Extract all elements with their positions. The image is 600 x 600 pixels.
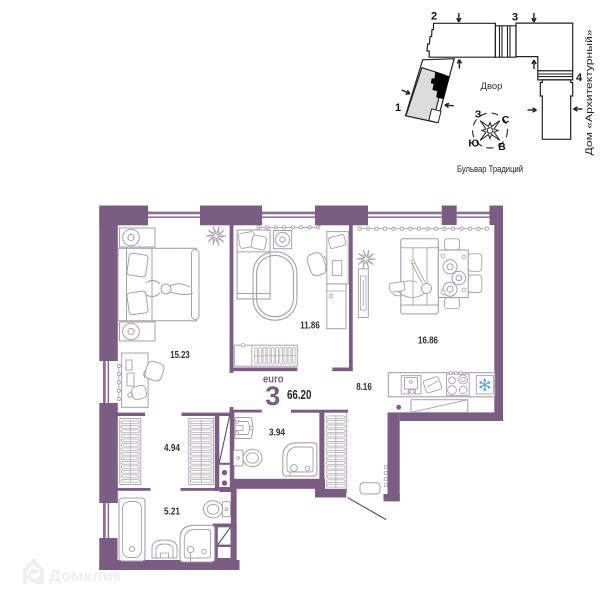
svg-text:4: 4	[576, 72, 583, 84]
svg-text:3.94: 3.94	[269, 427, 285, 439]
svg-text:В: В	[498, 141, 506, 153]
svg-text:3: 3	[512, 12, 518, 24]
svg-text:8.16: 8.16	[356, 381, 372, 393]
svg-text:11.86: 11.86	[300, 320, 320, 332]
svg-text:Домклик: Домклик	[49, 568, 121, 585]
svg-text:2: 2	[431, 11, 437, 23]
svg-text:1: 1	[395, 102, 401, 114]
svg-text:16.86: 16.86	[418, 335, 438, 347]
svg-text:66.20: 66.20	[287, 387, 312, 402]
svg-text:Ю: Ю	[468, 137, 479, 149]
svg-text:З: З	[475, 109, 482, 121]
svg-text:3: 3	[265, 381, 280, 411]
svg-text:Бульвар Традиций: Бульвар Традиций	[457, 164, 523, 174]
svg-text:4.94: 4.94	[164, 442, 180, 454]
svg-text:Дом «Архитектурный»: Дом «Архитектурный»	[584, 30, 594, 156]
svg-text:5.21: 5.21	[164, 506, 180, 518]
svg-text:С: С	[502, 114, 510, 126]
svg-text:15.23: 15.23	[170, 349, 190, 361]
svg-text:Двор: Двор	[481, 81, 503, 92]
